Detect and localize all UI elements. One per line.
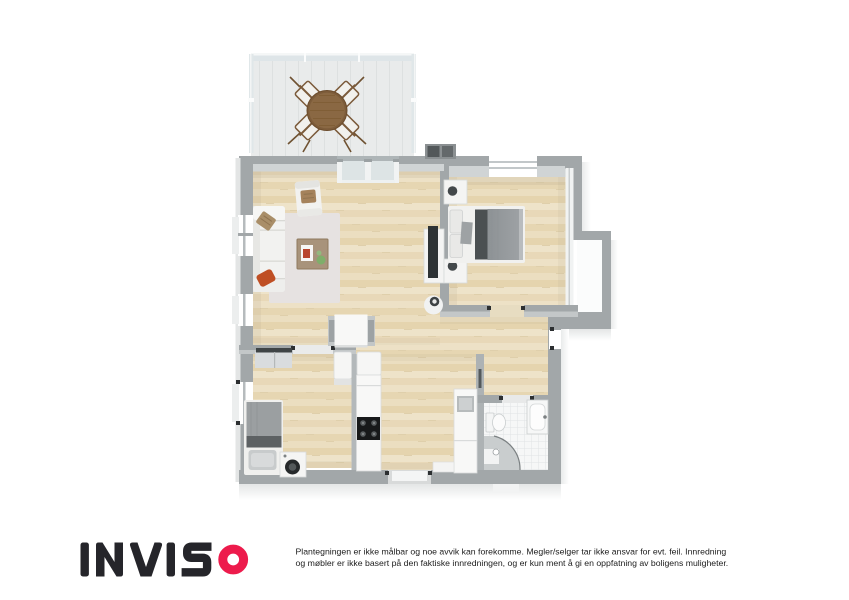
svg-text:og møbler er ikke basert på de: og møbler er ikke basert på den faktiske… [296, 558, 729, 568]
svg-text:Plantegningen er ikke målbar o: Plantegningen er ikke målbar og noe avvi… [296, 547, 727, 557]
